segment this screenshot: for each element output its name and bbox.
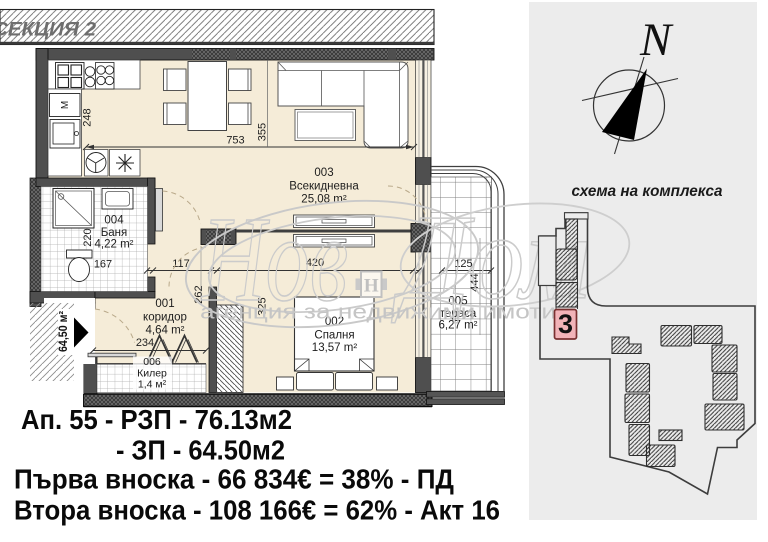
svg-text:234: 234 [136,337,154,349]
svg-text:167: 167 [94,259,112,271]
svg-text:64,50 м²: 64,50 м² [58,311,70,352]
svg-text:003: 003 [314,167,333,179]
svg-text:СЕКЦИЯ 2: СЕКЦИЯ 2 [0,19,96,41]
svg-text:- ЗП - 64.50м2: - ЗП - 64.50м2 [116,435,285,466]
svg-text:006: 006 [143,356,161,368]
svg-text:1,4 м²: 1,4 м² [138,379,167,391]
svg-text:Всекидневна: Всекидневна [289,181,359,193]
svg-text:N: N [639,14,674,66]
svg-text:Спалня: Спалня [314,330,354,342]
svg-text:коридор: коридор [143,312,187,324]
svg-text:Първа вноска - 66 834€ = 38% -: Първа вноска - 66 834€ = 38% - ПД [14,464,454,495]
svg-text:М: М [60,101,71,109]
svg-text:248: 248 [82,108,94,126]
svg-text:004: 004 [104,215,124,227]
svg-text:Ап. 55 - РЗП - 76.13м2: Ап. 55 - РЗП - 76.13м2 [21,404,292,435]
svg-text:Н: Н [364,276,379,297]
svg-text:4,64 m²: 4,64 m² [146,325,185,337]
svg-text:агенция за недвижими имоти: агенция за недвижими имоти [200,301,556,324]
svg-text:13,57 m²: 13,57 m² [312,342,358,354]
svg-text:4,22 m²: 4,22 m² [95,239,134,251]
svg-text:Втора вноска - 108 166€ = 62%: Втора вноска - 108 166€ = 62% - Акт 16 [14,495,500,526]
svg-text:001: 001 [155,298,174,310]
svg-text:3: 3 [558,309,573,339]
svg-text:Баня: Баня [101,227,128,239]
svg-text:схема на комплекса: схема на комплекса [572,183,723,200]
svg-text:220: 220 [82,228,94,246]
svg-text:355: 355 [257,123,269,141]
svg-text:753: 753 [226,135,244,147]
